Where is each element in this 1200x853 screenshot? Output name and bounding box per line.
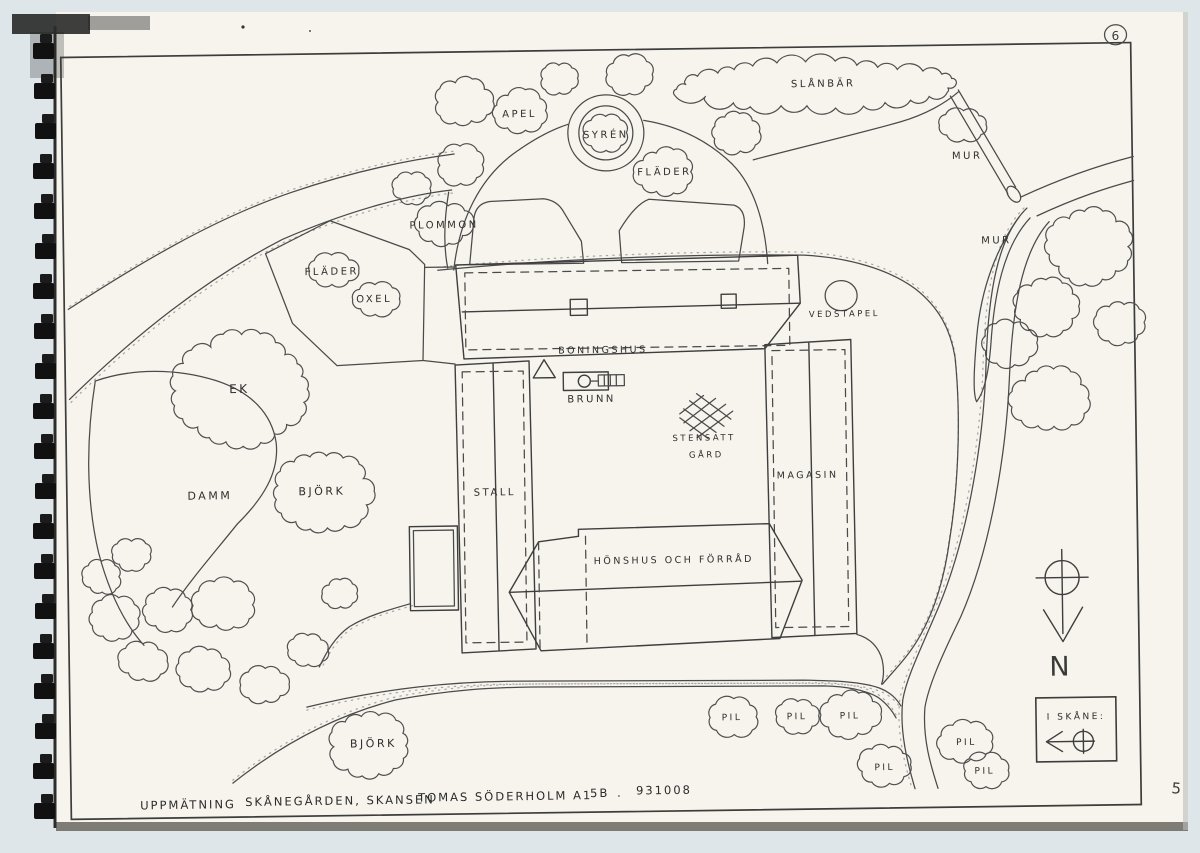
- map-label-fl-der: FLÄDER: [637, 165, 692, 179]
- scan-speck: [241, 25, 244, 28]
- paper-right-edge: [1183, 12, 1188, 830]
- binding-tab: [34, 683, 55, 699]
- map-label-h-nshus-och-f-rr-d: HÖNSHUS OCH FÖRRÅD: [594, 553, 754, 567]
- binding-tab: [41, 674, 53, 683]
- binding-tab: [40, 634, 52, 643]
- map-label-pil: PIL: [787, 712, 808, 722]
- binding-tab: [40, 154, 52, 163]
- binding-tab: [35, 483, 56, 499]
- map-label-pil: PIL: [840, 711, 861, 721]
- binding-tab: [34, 203, 55, 219]
- scan-smudge: [12, 14, 90, 34]
- binding-tab: [33, 523, 54, 539]
- binding-tab: [41, 794, 53, 803]
- caption-text: 931008: [636, 783, 692, 798]
- binding-tab: [41, 314, 53, 323]
- binding-tab: [34, 323, 55, 339]
- map-label-syr-n: SYRÉN: [583, 128, 629, 142]
- binding-tab: [34, 443, 55, 459]
- binding-tab: [34, 803, 55, 819]
- map-label-stall: STALL: [474, 487, 516, 499]
- map-label-oxel: OXEL: [356, 294, 392, 306]
- caption-text: UPPMÄTNING: [140, 796, 236, 812]
- binding-tab: [33, 283, 54, 299]
- map-label-mur: MUR: [981, 235, 1012, 246]
- binding-tab: [42, 594, 54, 603]
- map-label-sl-nb-r: SLÅNBÄR: [791, 76, 856, 90]
- map-label-pil: PIL: [956, 738, 977, 748]
- binding-tab: [40, 514, 52, 523]
- binding-tab: [33, 763, 54, 779]
- map-label-stensatt: STENSATT: [672, 433, 735, 444]
- scan-speck: [309, 30, 311, 32]
- map-label-plommon: PLOMMON: [409, 220, 478, 232]
- binding-tab: [40, 394, 52, 403]
- map-label-vedstapel: VEDSTAPEL: [809, 309, 880, 320]
- caption-text: SKÅNEGÅRDEN, SKANSEN: [245, 791, 435, 809]
- binding-tab: [33, 163, 54, 179]
- map-label-boningshus: BONINGSHUS: [558, 344, 648, 356]
- north-label: N: [1049, 651, 1070, 682]
- binding-tab: [42, 114, 54, 123]
- map-label-bj-rk: BJÖRK: [298, 485, 345, 499]
- binding-tab: [33, 403, 54, 419]
- binding-tab: [35, 723, 56, 739]
- caption-text: .: [617, 786, 623, 800]
- binding-tab: [41, 434, 53, 443]
- binding-tab: [41, 194, 53, 203]
- paper-bottom-shadow: [56, 822, 1188, 831]
- map-label-bj-rk: BJÖRK: [350, 737, 397, 751]
- binding-tab: [35, 363, 56, 379]
- map-label-brunn: BRUNN: [567, 394, 616, 406]
- map-label-magasin: MAGASIN: [777, 470, 839, 482]
- map-label-mur: MUR: [952, 151, 983, 162]
- binding-tab: [35, 123, 56, 139]
- binding-tab: [40, 274, 52, 283]
- map-label-fl-der: FLÄDER: [304, 264, 359, 278]
- corner-page-number: 5: [1171, 779, 1182, 798]
- map-label-g-rd: GÅRD: [689, 448, 724, 460]
- map-label-pil: PIL: [722, 713, 743, 723]
- binding-tab: [40, 754, 52, 763]
- scan-smudge: [88, 16, 150, 30]
- inset-title: I SKÅNE:: [1047, 710, 1106, 723]
- binding-tab: [40, 34, 52, 43]
- binding-tab: [33, 43, 54, 59]
- binding-tab: [41, 74, 53, 83]
- binding-tab: [34, 563, 55, 579]
- binding-tab: [42, 354, 54, 363]
- map-label-pil: PIL: [874, 763, 895, 773]
- binding-tab: [35, 603, 56, 619]
- map-label-damm: DAMM: [187, 489, 232, 503]
- map-label-ek: EK: [229, 382, 250, 396]
- map-label-pil: PIL: [974, 767, 995, 777]
- site-plan-scan: N I SKÅNE: 6 5 APELSYRÉNFLÄDERPLOMMONSLÅ…: [0, 0, 1200, 853]
- binding-tab: [35, 243, 56, 259]
- scanned-page: N I SKÅNE: 6 5 APELSYRÉNFLÄDERPLOMMONSLÅ…: [0, 0, 1200, 853]
- map-label-apel: APEL: [502, 109, 537, 120]
- caption-text: 5B: [590, 786, 609, 800]
- binding-tab: [34, 83, 55, 99]
- binding-tab: [42, 234, 54, 243]
- sheet-number: 6: [1111, 29, 1119, 43]
- binding-tab: [42, 474, 54, 483]
- binding-tab: [33, 643, 54, 659]
- binding-tab: [42, 714, 54, 723]
- binding-tab: [41, 554, 53, 563]
